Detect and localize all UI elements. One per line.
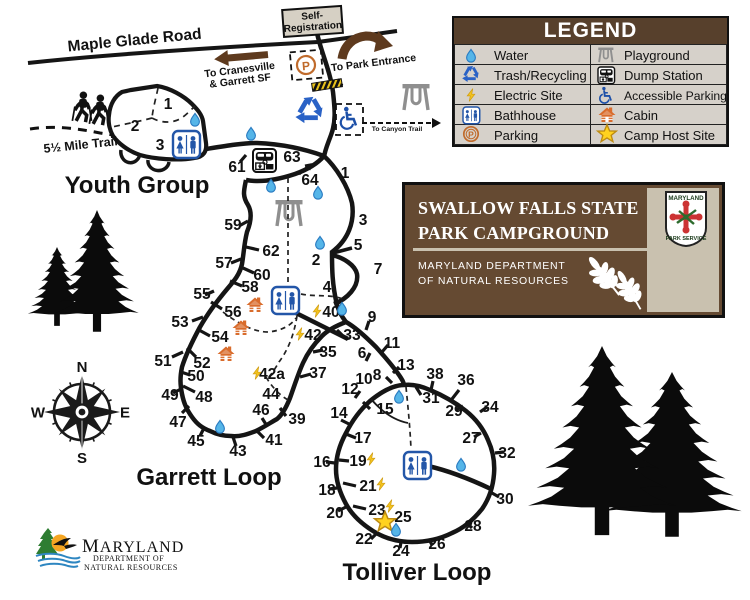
svg-text:S: S <box>77 450 87 467</box>
svg-text:58: 58 <box>241 279 259 296</box>
svg-text:64: 64 <box>301 172 319 189</box>
svg-text:41: 41 <box>265 432 283 449</box>
svg-text:Electric Site: Electric Site <box>494 88 563 103</box>
svg-text:62: 62 <box>262 243 279 260</box>
svg-text:51: 51 <box>154 353 172 370</box>
svg-text:5: 5 <box>354 237 363 254</box>
svg-text:14: 14 <box>330 405 348 422</box>
svg-text:48: 48 <box>195 389 213 406</box>
svg-text:40: 40 <box>322 304 339 321</box>
svg-text:13: 13 <box>397 357 415 374</box>
svg-text:2: 2 <box>131 118 140 135</box>
svg-text:Camp Host Site: Camp Host Site <box>624 128 715 143</box>
svg-text:15: 15 <box>376 401 394 418</box>
svg-text:56: 56 <box>224 304 242 321</box>
svg-text:22: 22 <box>355 531 372 548</box>
svg-text:NATURAL RESOURCES: NATURAL RESOURCES <box>84 563 178 572</box>
svg-text:P: P <box>468 129 474 139</box>
svg-text:44: 44 <box>262 386 280 403</box>
svg-text:31: 31 <box>422 390 440 407</box>
svg-text:42a: 42a <box>259 366 285 383</box>
svg-text:25: 25 <box>394 509 412 526</box>
svg-text:3: 3 <box>359 212 368 229</box>
svg-text:17: 17 <box>354 430 371 447</box>
svg-text:2: 2 <box>312 252 321 269</box>
svg-text:Trash/Recycling: Trash/Recycling <box>494 68 587 83</box>
svg-text:53: 53 <box>171 314 189 331</box>
svg-text:Youth Group: Youth Group <box>65 172 210 199</box>
svg-text:36: 36 <box>457 372 475 389</box>
svg-text:8: 8 <box>373 367 382 384</box>
svg-text:Cabin: Cabin <box>624 108 658 123</box>
svg-text:45: 45 <box>187 433 205 450</box>
svg-text:46: 46 <box>252 402 270 419</box>
svg-text:W: W <box>31 405 46 422</box>
svg-text:43: 43 <box>229 443 247 460</box>
svg-text:Tolliver Loop: Tolliver Loop <box>343 559 492 586</box>
svg-text:1: 1 <box>341 165 350 182</box>
svg-text:42: 42 <box>304 327 321 344</box>
svg-text:Bathhouse: Bathhouse <box>494 108 556 123</box>
svg-text:P: P <box>301 59 310 74</box>
svg-text:28: 28 <box>464 518 482 535</box>
svg-text:21: 21 <box>359 478 377 495</box>
svg-text:11: 11 <box>384 335 401 352</box>
svg-text:Water: Water <box>494 48 529 63</box>
svg-text:20: 20 <box>326 505 343 522</box>
svg-text:18: 18 <box>318 482 336 499</box>
svg-text:38: 38 <box>426 366 444 383</box>
svg-text:4: 4 <box>323 279 332 296</box>
svg-text:54: 54 <box>211 329 229 346</box>
svg-text:DEPARTMENT OF: DEPARTMENT OF <box>93 554 164 563</box>
svg-text:19: 19 <box>349 453 367 470</box>
svg-text:37: 37 <box>309 365 326 382</box>
svg-text:29: 29 <box>445 403 463 420</box>
svg-text:39: 39 <box>288 411 306 428</box>
svg-text:27: 27 <box>462 430 479 447</box>
svg-text:To Canyon Trail: To Canyon Trail <box>372 126 423 133</box>
svg-text:63: 63 <box>283 149 301 166</box>
svg-text:1: 1 <box>164 96 173 113</box>
svg-text:61: 61 <box>228 159 246 176</box>
svg-text:47: 47 <box>169 414 186 431</box>
svg-text:3: 3 <box>156 137 165 154</box>
svg-text:5½ Mile Trail: 5½ Mile Trail <box>43 134 118 156</box>
svg-text:Garrett Loop: Garrett Loop <box>136 464 281 491</box>
svg-text:PARK SERVICE: PARK SERVICE <box>666 236 707 242</box>
svg-text:35: 35 <box>319 344 337 361</box>
svg-text:Playground: Playground <box>624 48 690 63</box>
svg-text:E: E <box>120 405 130 422</box>
svg-text:Accessible Parking: Accessible Parking <box>624 89 727 103</box>
svg-text:N: N <box>77 359 88 376</box>
svg-text:Dump Station: Dump Station <box>624 68 703 83</box>
svg-text:50: 50 <box>187 368 204 385</box>
svg-text:33: 33 <box>343 327 361 344</box>
svg-text:Parking: Parking <box>494 128 538 143</box>
svg-text:7: 7 <box>374 261 383 278</box>
svg-text:57: 57 <box>215 255 232 272</box>
svg-text:30: 30 <box>496 491 513 508</box>
